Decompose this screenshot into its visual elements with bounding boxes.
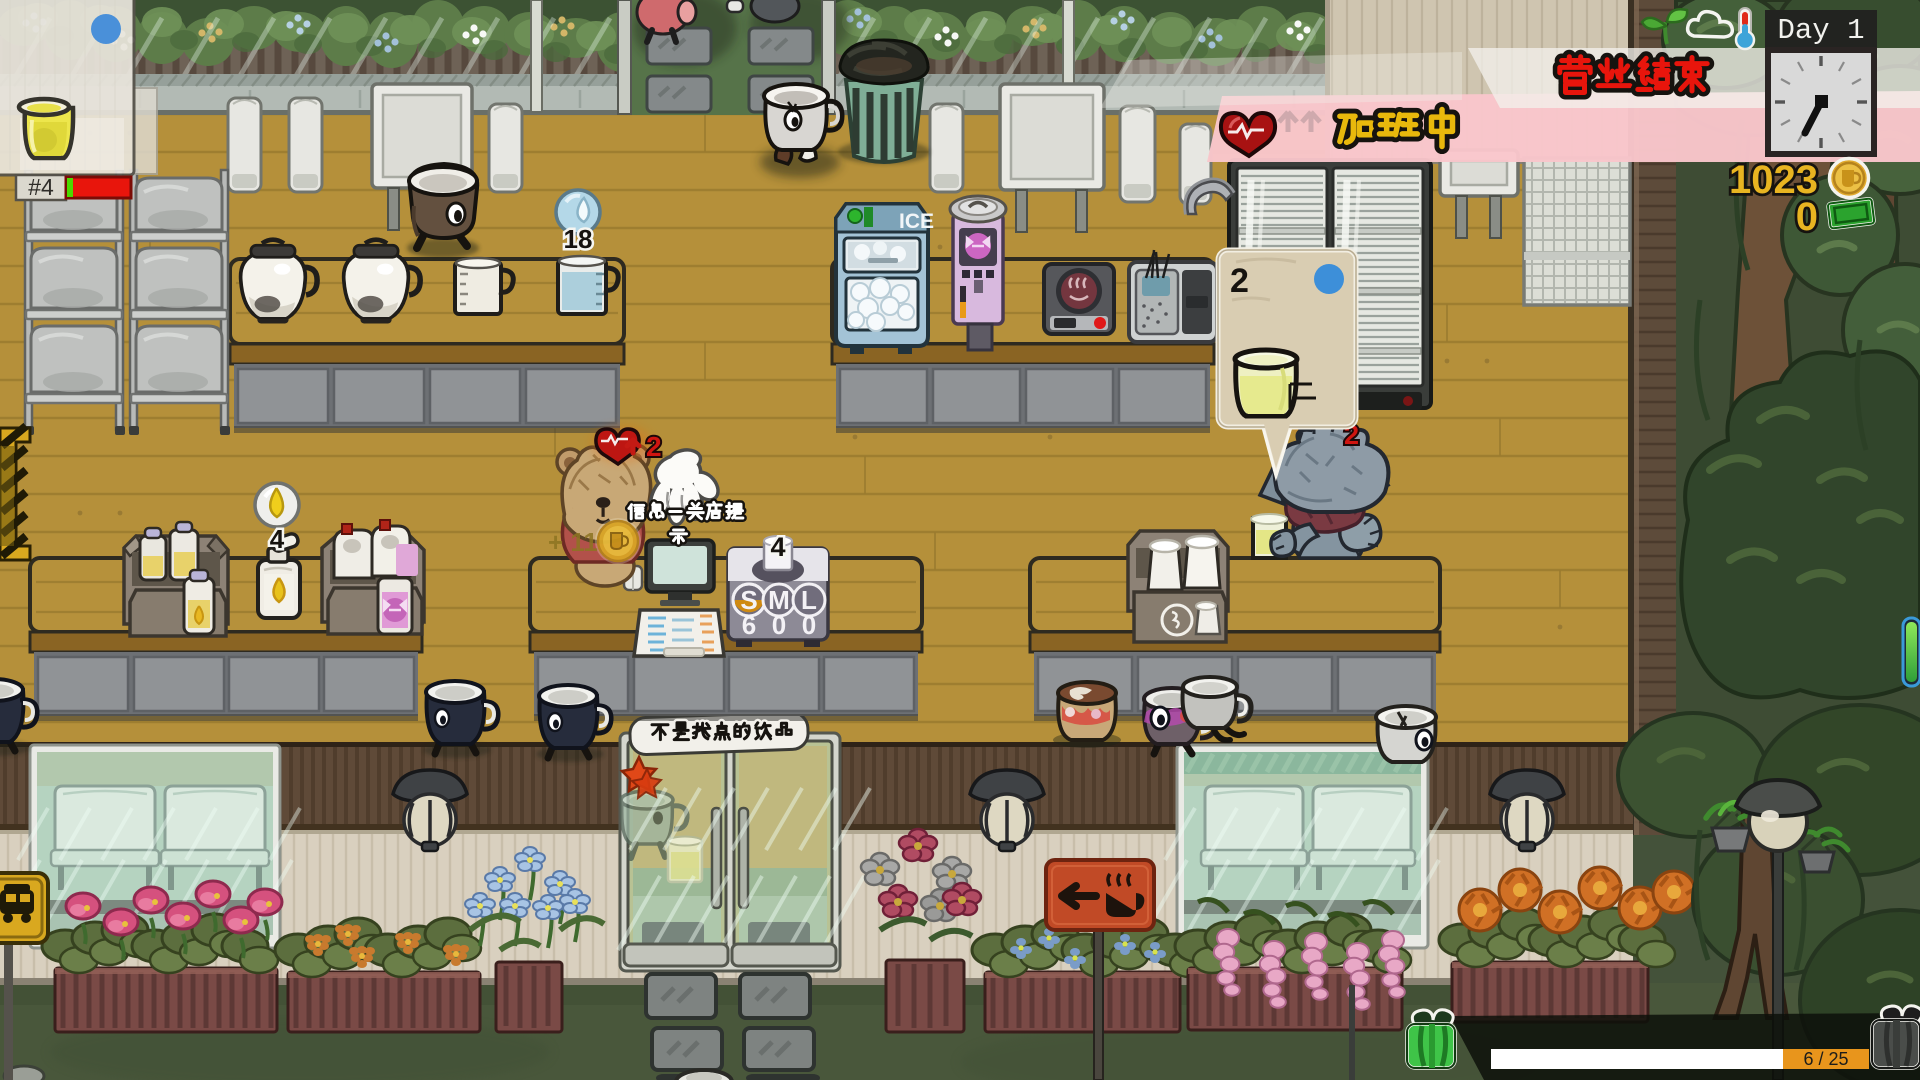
- svg-text:0: 0: [1796, 195, 1818, 239]
- svg-text:+ 11: + 11: [548, 527, 598, 557]
- svg-text:2: 2: [646, 431, 662, 462]
- svg-text:6: 6: [742, 610, 756, 640]
- svg-text:18: 18: [564, 224, 593, 254]
- svg-text:2: 2: [1230, 262, 1249, 300]
- svg-text:0: 0: [802, 610, 816, 640]
- svg-text:ICE: ICE: [899, 210, 934, 233]
- svg-text:0: 0: [772, 610, 786, 640]
- svg-text:6 / 25: 6 / 25: [1803, 1049, 1848, 1069]
- svg-text:Day 1: Day 1: [1777, 14, 1864, 47]
- svg-text:#4: #4: [28, 174, 54, 200]
- svg-text:4: 4: [770, 532, 785, 562]
- svg-text:4: 4: [270, 524, 285, 554]
